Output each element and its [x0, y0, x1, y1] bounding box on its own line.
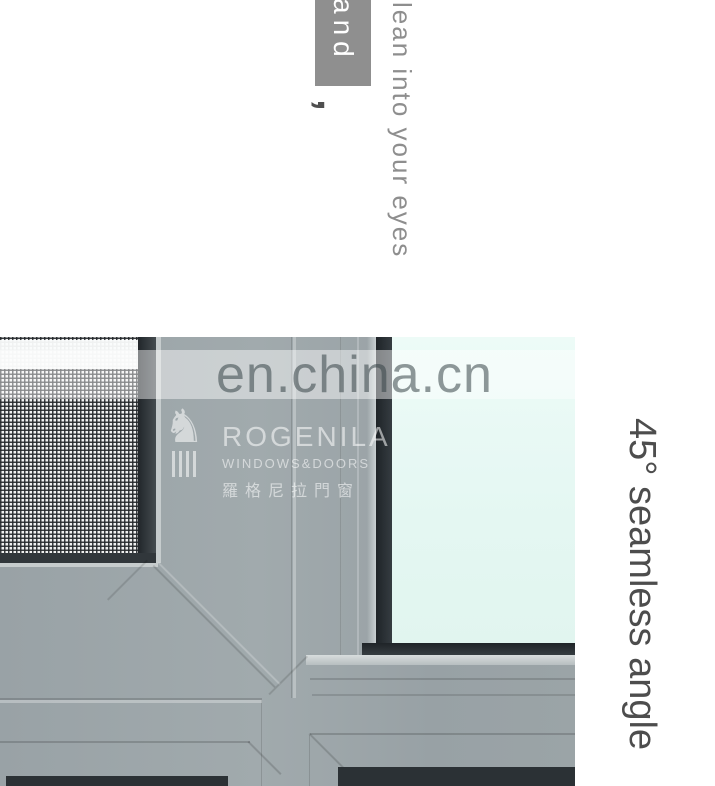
- brand-logo-text: ROGENILA WINDOWS&DOORS 羅格尼拉門窗: [222, 403, 391, 501]
- brand-name: ROGENILA: [222, 421, 391, 453]
- mullion-seam-line: [309, 735, 310, 786]
- bottom-left-recessed-panel: [6, 776, 228, 786]
- bottom-right-corner-bevel: [309, 733, 344, 768]
- highlighted-word: and: [327, 0, 359, 62]
- miter-seam-highlight: [158, 562, 281, 685]
- bottom-left-corner-bevel: [248, 741, 282, 775]
- brand-tagline: WINDOWS&DOORS: [222, 456, 391, 471]
- vertical-phrase: lean into your eyes: [386, 2, 417, 312]
- highlighted-word-box: and: [315, 0, 371, 86]
- watermark-text: en.china.cn: [216, 349, 493, 401]
- lion-knight-on-column-icon: ♞: [158, 403, 210, 501]
- mesh-frame-bottom-edge: [0, 553, 156, 563]
- sill-bevel-line: [310, 678, 575, 680]
- column-icon: [172, 451, 196, 477]
- sill-corner-bevel: [268, 656, 308, 696]
- knight-glyph: ♞: [163, 403, 204, 449]
- sill-highlight: [306, 655, 575, 665]
- side-caption: 45° seamless angle: [620, 418, 663, 768]
- comma-mark: ,: [311, 99, 353, 111]
- bottom-left-bevel-line: [0, 741, 250, 743]
- brand-logo: ♞ ROGENILA WINDOWS&DOORS 羅格尼拉門窗: [158, 403, 418, 501]
- bottom-right-recessed-panel: [338, 767, 575, 786]
- sash-bevel-highlight: [0, 700, 262, 703]
- mesh-frame-bottom-highlight: [0, 563, 158, 567]
- page-canvas: and , lean into your eyes 45° seamless a…: [0, 0, 715, 786]
- product-photo: en.china.cn ♞ ROGENILA WINDOWS&DOORS 羅格尼…: [0, 337, 575, 786]
- sill-bevel-line: [312, 694, 575, 696]
- mullion-seam-line: [261, 700, 262, 786]
- bottom-right-bevel-line: [310, 733, 575, 735]
- brand-chinese-name: 羅格尼拉門窗: [222, 477, 391, 501]
- watermark-band: en.china.cn: [0, 350, 575, 399]
- miter-seam-line: [153, 565, 276, 688]
